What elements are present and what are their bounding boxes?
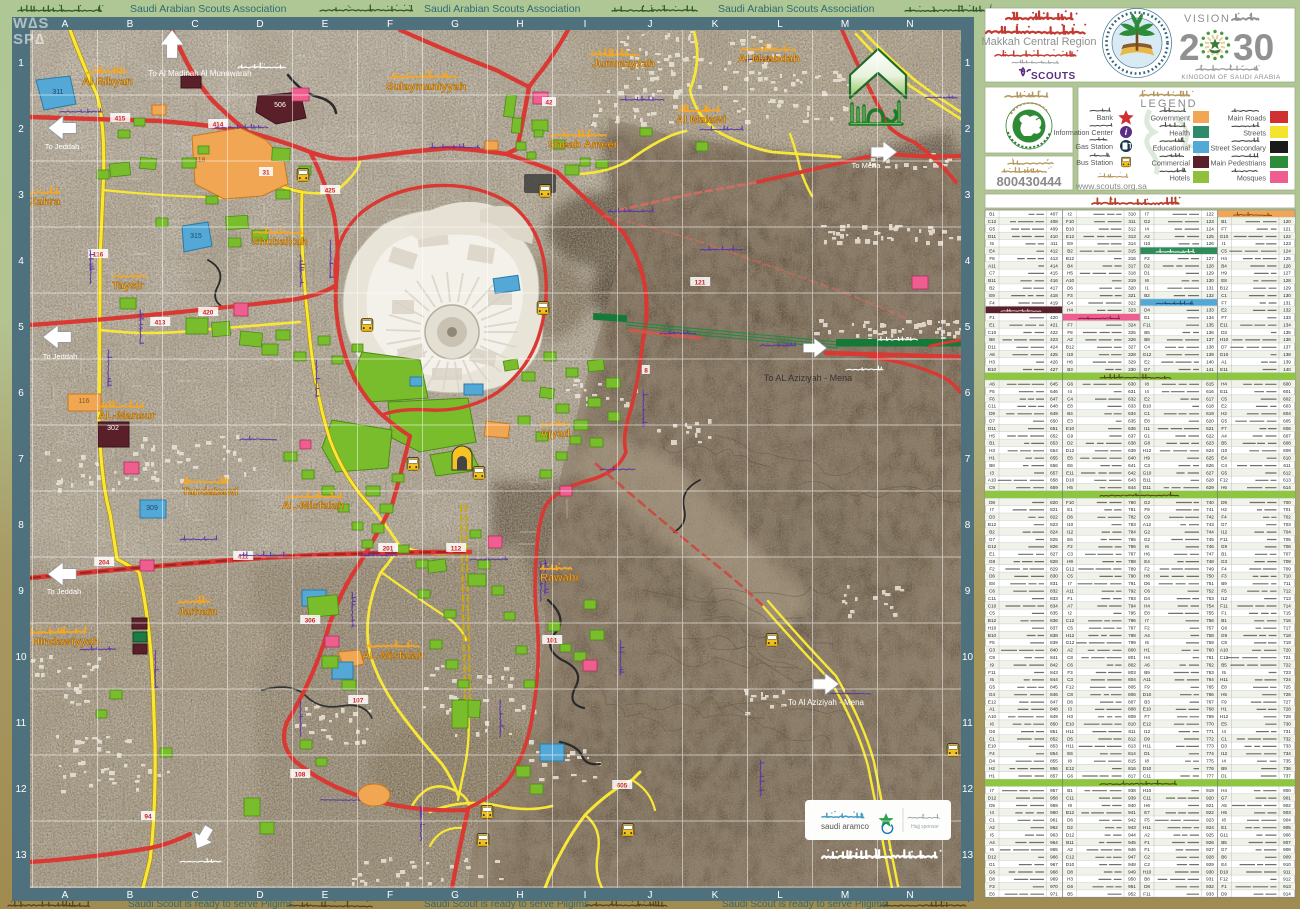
svg-text:D5: D5 (989, 803, 995, 808)
svg-text:833: 833 (1050, 596, 1058, 601)
svg-text:415: 415 (115, 116, 126, 123)
svg-text:F1: F1 (1144, 847, 1150, 852)
svg-text:642: 642 (1128, 470, 1136, 475)
svg-text:B: B (127, 890, 134, 901)
svg-text:751: 751 (1206, 581, 1214, 586)
svg-text:850: 850 (1050, 722, 1058, 727)
svg-text:C4: C4 (1144, 345, 1150, 350)
svg-text:F4: F4 (1221, 515, 1227, 520)
svg-text:J: J (648, 19, 653, 30)
svg-text:A6: A6 (989, 352, 995, 357)
svg-text:Saudi Arabian Scouts Associati: Saudi Arabian Scouts Association (424, 3, 581, 15)
svg-text:944: 944 (1128, 832, 1136, 837)
svg-text:H12: H12 (1220, 714, 1229, 719)
svg-text:B1: B1 (1221, 219, 1227, 224)
svg-text:B5: B5 (1067, 892, 1073, 897)
svg-text:736: 736 (1283, 766, 1291, 771)
svg-text:F10: F10 (1066, 219, 1074, 224)
svg-text:Bus Station: Bus Station (1076, 158, 1113, 167)
svg-text:B3: B3 (1067, 367, 1073, 372)
svg-text:655: 655 (1050, 456, 1058, 461)
svg-text:C9: C9 (989, 655, 995, 660)
svg-text:419: 419 (1050, 300, 1058, 305)
svg-text:C6: C6 (989, 589, 995, 594)
svg-text:959: 959 (1050, 803, 1058, 808)
svg-text:K: K (712, 19, 719, 30)
svg-text:10: 10 (962, 652, 974, 663)
svg-text:F11: F11 (1220, 537, 1228, 542)
svg-text:F3: F3 (989, 884, 995, 889)
svg-text:822: 822 (1050, 515, 1058, 520)
svg-text:912: 912 (1283, 877, 1291, 882)
svg-text:962: 962 (1050, 825, 1058, 830)
svg-text:Saudi Arabian Scouts Associati: Saudi Arabian Scouts Association (130, 3, 287, 15)
svg-text:E11: E11 (1066, 470, 1074, 475)
svg-text:626: 626 (1206, 463, 1214, 468)
svg-text:E1: E1 (1067, 507, 1073, 512)
svg-text:741: 741 (1206, 507, 1214, 512)
svg-text:E1: E1 (989, 322, 995, 327)
svg-text:D8: D8 (989, 877, 995, 882)
svg-text:A4: A4 (989, 840, 995, 845)
svg-text:N: N (906, 19, 913, 30)
svg-text:E10: E10 (1066, 426, 1075, 431)
svg-text:G7: G7 (989, 537, 996, 542)
svg-text:A6: A6 (989, 382, 995, 387)
svg-text:792: 792 (1128, 589, 1136, 594)
svg-text:728: 728 (1283, 707, 1291, 712)
svg-text:127: 127 (1283, 271, 1291, 276)
svg-text:I4: I4 (1222, 759, 1226, 764)
svg-text:A2: A2 (1144, 234, 1150, 239)
svg-text:F11: F11 (1220, 603, 1228, 608)
svg-text:408: 408 (1050, 219, 1058, 224)
svg-text:A10: A10 (1220, 648, 1229, 653)
svg-text:B1: B1 (989, 212, 995, 217)
svg-text:637: 637 (1128, 433, 1136, 438)
svg-text:E2: E2 (1144, 359, 1150, 364)
svg-text:909: 909 (1283, 855, 1291, 860)
svg-text:E6: E6 (989, 892, 995, 897)
svg-text:F4: F4 (1221, 566, 1227, 571)
svg-text:622: 622 (1206, 433, 1214, 438)
svg-text:745: 745 (1206, 537, 1214, 542)
svg-text:F11: F11 (988, 670, 996, 675)
svg-text:Main Pedestrians: Main Pedestrians (1210, 159, 1266, 168)
svg-text:839: 839 (1050, 640, 1058, 645)
svg-text:654: 654 (1050, 448, 1058, 453)
svg-text:11: 11 (16, 718, 27, 729)
svg-text:E6: E6 (1067, 537, 1073, 542)
svg-text:802: 802 (1128, 662, 1136, 667)
svg-text:422: 422 (1050, 330, 1058, 335)
svg-text:H11: H11 (1220, 677, 1229, 682)
svg-text:746: 746 (1206, 544, 1214, 549)
svg-text:94: 94 (144, 814, 152, 821)
svg-text:A11: A11 (988, 263, 996, 268)
svg-text:SCOUTS: SCOUTS (1031, 71, 1076, 82)
svg-text:A10: A10 (988, 478, 997, 483)
svg-text:D8: D8 (989, 500, 995, 505)
svg-text:807: 807 (1128, 699, 1136, 704)
svg-text:B11: B11 (988, 278, 996, 283)
svg-text:827: 827 (1050, 552, 1058, 557)
svg-text:755: 755 (1206, 611, 1214, 616)
svg-text:855: 855 (1050, 759, 1058, 764)
svg-text:713: 713 (1283, 596, 1291, 601)
svg-text:AL-Misfalah: AL-Misfalah (362, 650, 425, 662)
svg-text:KINGDOM OF SAUDI ARABIA: KINGDOM OF SAUDI ARABIA (1181, 74, 1281, 81)
svg-text:125: 125 (1283, 256, 1291, 261)
svg-text:725: 725 (1283, 685, 1291, 690)
svg-text:B10: B10 (1143, 404, 1152, 409)
svg-text:A2: A2 (1067, 337, 1073, 342)
svg-text:913: 913 (1283, 884, 1291, 889)
svg-text:E6: E6 (1067, 463, 1073, 468)
svg-text:G10: G10 (1220, 234, 1229, 239)
svg-text:H9: H9 (1221, 271, 1227, 276)
svg-text:I4: I4 (1145, 226, 1149, 231)
svg-text:423: 423 (1050, 337, 1058, 342)
svg-text:I7: I7 (1068, 581, 1072, 586)
svg-text:42: 42 (545, 100, 553, 107)
svg-text:310: 310 (1128, 212, 1136, 217)
svg-text:G6: G6 (1067, 773, 1074, 778)
svg-text:B12: B12 (1220, 286, 1229, 291)
svg-text:133: 133 (1206, 308, 1214, 313)
svg-text:323: 323 (1128, 308, 1136, 313)
svg-text:H: H (516, 19, 523, 30)
svg-text:C3: C3 (1144, 463, 1150, 468)
svg-text:H5: H5 (1067, 271, 1073, 276)
svg-text:B2: B2 (989, 529, 995, 534)
svg-text:E11: E11 (1220, 367, 1228, 372)
svg-text:411: 411 (1050, 241, 1058, 246)
svg-text:126: 126 (1283, 263, 1291, 268)
svg-text:Government: Government (1150, 114, 1190, 123)
svg-text:C10: C10 (988, 603, 997, 608)
svg-text:842: 842 (1050, 662, 1058, 667)
svg-text:704: 704 (1283, 529, 1291, 534)
svg-text:Makkah Central Region: Makkah Central Region (982, 36, 1097, 48)
svg-text:F5: F5 (989, 389, 995, 394)
svg-text:B2: B2 (1144, 293, 1150, 298)
svg-text:H4: H4 (1067, 308, 1073, 313)
svg-text:C11: C11 (988, 404, 997, 409)
svg-text:Hotels: Hotels (1170, 174, 1191, 183)
svg-text:F: F (387, 890, 393, 901)
svg-text:H: H (516, 890, 523, 901)
svg-text:650: 650 (1050, 419, 1058, 424)
svg-text:I4: I4 (1068, 389, 1072, 394)
svg-text:Jarham: Jarham (178, 606, 217, 618)
svg-text:H10: H10 (1143, 788, 1152, 793)
svg-text:I8: I8 (1222, 818, 1226, 823)
svg-text:723: 723 (1283, 670, 1291, 675)
svg-text:F8: F8 (1067, 330, 1073, 335)
svg-text:D9: D9 (1221, 892, 1227, 897)
svg-text:H4: H4 (1221, 256, 1227, 261)
svg-text:D11: D11 (1143, 485, 1152, 490)
svg-text:964: 964 (1050, 840, 1058, 845)
svg-text:729: 729 (1283, 714, 1291, 719)
svg-text:606: 606 (1283, 426, 1291, 431)
svg-text:F2: F2 (1144, 256, 1150, 261)
svg-text:796: 796 (1128, 618, 1136, 623)
svg-text:716: 716 (1283, 618, 1291, 623)
svg-text:644: 644 (1128, 485, 1136, 490)
svg-text:I12: I12 (1221, 751, 1228, 756)
svg-text:C1: C1 (1221, 293, 1227, 298)
svg-text:970: 970 (1050, 884, 1058, 889)
svg-text:Bank: Bank (1097, 113, 1114, 122)
svg-text:407: 407 (1050, 212, 1058, 217)
svg-text:E5: E5 (1221, 722, 1227, 727)
svg-text:309: 309 (146, 505, 158, 512)
svg-text:1: 1 (18, 58, 24, 69)
svg-text:743: 743 (1206, 522, 1214, 527)
svg-text:B9: B9 (1221, 581, 1227, 586)
svg-text:506: 506 (274, 102, 286, 109)
svg-text:C1: C1 (1221, 736, 1227, 741)
svg-text:C1: C1 (989, 736, 995, 741)
svg-text:767: 767 (1206, 699, 1214, 704)
svg-text:5: 5 (18, 322, 24, 333)
svg-text:315: 315 (190, 233, 202, 240)
svg-text:330: 330 (1128, 367, 1136, 372)
svg-text:I: I (584, 890, 587, 901)
svg-text:D1: D1 (1221, 773, 1227, 778)
svg-text:838: 838 (1050, 633, 1058, 638)
svg-text:Information Center: Information Center (1053, 128, 1113, 137)
svg-text:108: 108 (295, 772, 306, 779)
svg-text:795: 795 (1128, 611, 1136, 616)
svg-text:G5: G5 (1221, 470, 1228, 475)
svg-text:B12: B12 (1066, 345, 1075, 350)
svg-text:960: 960 (1050, 810, 1058, 815)
svg-text:659: 659 (1050, 485, 1058, 490)
svg-text:C12: C12 (1066, 618, 1075, 623)
svg-text:656: 656 (1050, 463, 1058, 468)
svg-text:H1: H1 (989, 773, 995, 778)
svg-text:607: 607 (1283, 433, 1291, 438)
svg-text:794: 794 (1128, 603, 1136, 608)
svg-text:C9: C9 (1221, 640, 1227, 645)
svg-text:737: 737 (1283, 773, 1291, 778)
svg-text:G8: G8 (1144, 441, 1151, 446)
svg-text:I6: I6 (990, 847, 994, 852)
svg-text:C8: C8 (1067, 655, 1073, 660)
svg-text:734: 734 (1283, 751, 1291, 756)
svg-text:617: 617 (1206, 396, 1214, 401)
svg-text:615: 615 (1206, 382, 1214, 387)
svg-text:G9: G9 (1221, 633, 1228, 638)
svg-text:D3: D3 (989, 515, 995, 520)
svg-text:F9: F9 (1221, 699, 1227, 704)
svg-text:C11: C11 (988, 596, 997, 601)
svg-text:G10: G10 (1143, 470, 1152, 475)
svg-text:D4: D4 (1144, 308, 1150, 313)
svg-text:764: 764 (1206, 677, 1214, 682)
svg-text:F12: F12 (1220, 877, 1228, 882)
svg-text:812: 812 (1128, 736, 1136, 741)
svg-text:634: 634 (1128, 411, 1136, 416)
svg-text:605: 605 (617, 783, 628, 790)
svg-text:D3: D3 (1221, 744, 1227, 749)
svg-text:B: B (127, 19, 134, 30)
svg-text:I12: I12 (1144, 729, 1151, 734)
svg-text:F1: F1 (1067, 596, 1073, 601)
svg-text:Sulaymaniyyah: Sulaymaniyyah (386, 81, 466, 93)
svg-text:G10: G10 (1220, 352, 1229, 357)
svg-text:742: 742 (1206, 515, 1214, 520)
svg-text:G6: G6 (1221, 625, 1228, 630)
svg-text:601: 601 (1283, 389, 1291, 394)
svg-text:4: 4 (18, 256, 24, 267)
svg-text:747: 747 (1206, 552, 1214, 557)
svg-text:112: 112 (451, 546, 462, 553)
svg-text:B1: B1 (1221, 618, 1227, 623)
svg-text:I: I (584, 19, 587, 30)
svg-text:752: 752 (1206, 589, 1214, 594)
svg-text:F2: F2 (1144, 566, 1150, 571)
svg-text:SP∆: SP∆ (13, 31, 45, 48)
svg-text:Hajj sponsor: Hajj sponsor (911, 824, 939, 830)
svg-text:733: 733 (1283, 744, 1291, 749)
svg-text:E6: E6 (1067, 456, 1073, 461)
svg-text:I5: I5 (1145, 640, 1149, 645)
svg-text:137: 137 (1206, 337, 1214, 342)
svg-text:E4: E4 (1221, 456, 1227, 461)
svg-text:F11: F11 (1143, 322, 1151, 327)
svg-text:C: C (191, 890, 198, 901)
svg-text:To AL Aziziyah - Mena: To AL Aziziyah - Mena (764, 373, 852, 383)
svg-text:D: D (256, 19, 263, 30)
svg-text:B8: B8 (1144, 877, 1150, 882)
svg-text:722: 722 (1283, 662, 1291, 667)
svg-text:To Jeddah: To Jeddah (45, 142, 80, 151)
svg-text:E8: E8 (1067, 404, 1073, 409)
svg-text:830: 830 (1050, 574, 1058, 579)
svg-text:F6: F6 (989, 396, 995, 401)
svg-text:769: 769 (1206, 714, 1214, 719)
svg-text:13: 13 (962, 850, 974, 861)
svg-text:945: 945 (1128, 840, 1136, 845)
svg-text:L: L (777, 890, 783, 901)
svg-text:787: 787 (1128, 552, 1136, 557)
svg-text:854: 854 (1050, 751, 1058, 756)
svg-text:636: 636 (1128, 426, 1136, 431)
svg-text:602: 602 (1283, 396, 1291, 401)
svg-text:783: 783 (1128, 522, 1136, 527)
svg-text:F7: F7 (1221, 300, 1227, 305)
svg-text:D1: D1 (1144, 271, 1150, 276)
svg-text:H4: H4 (1144, 603, 1150, 608)
svg-text:9: 9 (965, 586, 971, 597)
svg-text:A6: A6 (1144, 662, 1150, 667)
svg-text:30: 30 (1233, 27, 1274, 68)
svg-text:G2: G2 (1144, 537, 1151, 542)
svg-text:425: 425 (1050, 352, 1058, 357)
svg-text:L: L (777, 19, 783, 30)
svg-text:702: 702 (1283, 515, 1291, 520)
svg-text:754: 754 (1206, 603, 1214, 608)
svg-text:139: 139 (1283, 359, 1291, 364)
svg-text:E: E (322, 890, 329, 901)
svg-text:I6: I6 (990, 722, 994, 727)
svg-text:I9: I9 (1068, 803, 1072, 808)
svg-text:12: 12 (15, 784, 27, 795)
svg-text:E11: E11 (1220, 389, 1228, 394)
svg-text:122: 122 (1206, 212, 1214, 217)
svg-text:AL-Misfalah: AL-Misfalah (282, 500, 345, 512)
svg-text:609: 609 (1283, 448, 1291, 453)
svg-text:E1: E1 (1144, 315, 1150, 320)
svg-text:610: 610 (1283, 456, 1291, 461)
svg-text:Al Malawi: Al Malawi (676, 114, 726, 126)
svg-text:324: 324 (1128, 322, 1136, 327)
svg-text:F: F (387, 19, 393, 30)
svg-text:G3: G3 (1221, 559, 1228, 564)
svg-text:931: 931 (1206, 877, 1214, 882)
svg-text:D10: D10 (1143, 766, 1152, 771)
svg-text:748: 748 (1206, 559, 1214, 564)
svg-text:G8: G8 (989, 559, 996, 564)
svg-text:E12: E12 (988, 699, 997, 704)
svg-text:H12: H12 (1143, 448, 1152, 453)
svg-text:756: 756 (1206, 618, 1214, 623)
svg-text:B5: B5 (1221, 441, 1227, 446)
svg-text:F7: F7 (1144, 714, 1150, 719)
svg-text:791: 791 (1128, 581, 1136, 586)
svg-text:F2: F2 (1067, 544, 1073, 549)
svg-text:C3: C3 (1067, 677, 1073, 682)
svg-text:H6: H6 (1221, 810, 1227, 815)
svg-text:D4: D4 (989, 759, 995, 764)
svg-text:H3: H3 (989, 359, 995, 364)
svg-text:905: 905 (1283, 825, 1291, 830)
svg-text:321: 321 (1128, 293, 1136, 298)
svg-text:G6: G6 (989, 729, 996, 734)
svg-text:7: 7 (965, 454, 971, 465)
svg-text:C5: C5 (1221, 249, 1227, 254)
svg-text:I7: I7 (1145, 618, 1149, 623)
svg-text:C11: C11 (1143, 773, 1152, 778)
svg-text:I8: I8 (1145, 382, 1149, 387)
svg-text:853: 853 (1050, 744, 1058, 749)
svg-text:H5: H5 (1221, 692, 1227, 697)
svg-text:A2: A2 (989, 825, 995, 830)
svg-text:762: 762 (1206, 662, 1214, 667)
svg-text:C9: C9 (1144, 515, 1150, 520)
svg-text:131: 131 (1283, 300, 1291, 305)
svg-text:C4: C4 (1067, 396, 1073, 401)
svg-text:D9: D9 (1144, 736, 1150, 741)
svg-text:B1: B1 (989, 441, 995, 446)
svg-text:140: 140 (1206, 359, 1214, 364)
svg-text:128: 128 (1283, 278, 1291, 283)
svg-text:844: 844 (1050, 677, 1058, 682)
svg-text:841: 841 (1050, 655, 1058, 660)
svg-text:646: 646 (1050, 389, 1058, 394)
svg-text:631: 631 (1128, 389, 1136, 394)
svg-text:414: 414 (1050, 263, 1058, 268)
svg-text:329: 329 (1128, 359, 1136, 364)
svg-text:E4: E4 (1144, 559, 1150, 564)
svg-text:969: 969 (1050, 877, 1058, 882)
svg-text:712: 712 (1283, 589, 1291, 594)
svg-text:826: 826 (1050, 544, 1058, 549)
